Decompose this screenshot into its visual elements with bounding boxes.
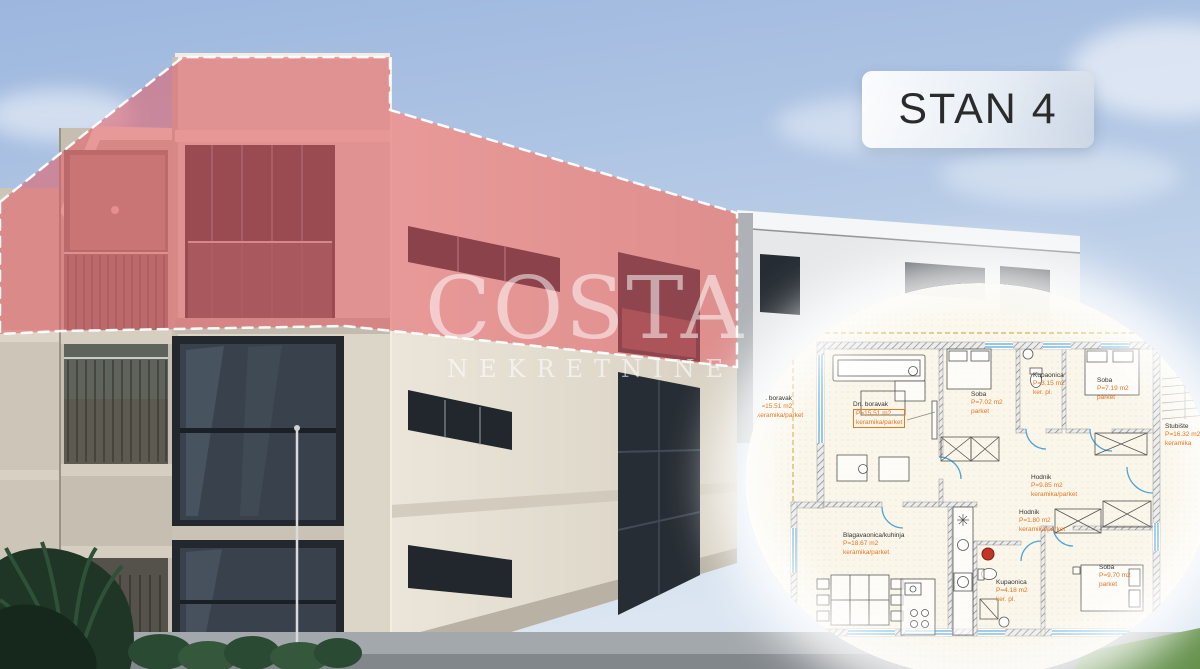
room-label-hallway-main: Hodnik P=9.85 m2 keramika/parket bbox=[1031, 474, 1077, 499]
room-label-bedroom-right: Soba P=7.19 m2 parket bbox=[1097, 377, 1129, 402]
floorplan-inset: Dn. boravak P=15.51 m2 keramika/parket D… bbox=[745, 283, 1200, 669]
room-label-terrace: Dn. boravak P=15.51 m2 keramika/parket bbox=[757, 395, 803, 420]
boiler-dot bbox=[982, 548, 994, 560]
room-label-bathroom-top: Kupaonica P=3.15 m2 ker. pl. bbox=[1033, 372, 1065, 397]
room-label-bedroom-bottom: Soba P=9.70 m2 parket bbox=[1099, 564, 1131, 589]
room-label-stairwell: Stubište P=16.32 m2 keramika bbox=[1165, 423, 1200, 448]
room-label-hallway-small: Hodnik P=1.80 m2 keramika/parket bbox=[1019, 509, 1065, 534]
apartment-badge-label: STAN 4 bbox=[898, 85, 1057, 134]
living-label-box: P=15.51 m2 keramika/parket bbox=[853, 409, 905, 428]
apartment-badge: STAN 4 bbox=[862, 71, 1094, 148]
room-label-living: Dn. boravak P=15.51 m2 keramika/parket bbox=[853, 401, 905, 428]
real-estate-visual: COSTA NEKRETNINE STAN 4 bbox=[0, 0, 1200, 669]
room-label-bathroom-bottom: Kupaonica P=4.18 m2 ker. pl. bbox=[996, 579, 1028, 604]
floorplan-drawing bbox=[745, 283, 1200, 669]
room-label-bedroom-top: Soba P=7.02 m2 parket bbox=[971, 391, 1003, 416]
room-label-dining-kitchen: Blagavaonica/kuhinja P=18.67 m2 keramika… bbox=[843, 532, 904, 557]
